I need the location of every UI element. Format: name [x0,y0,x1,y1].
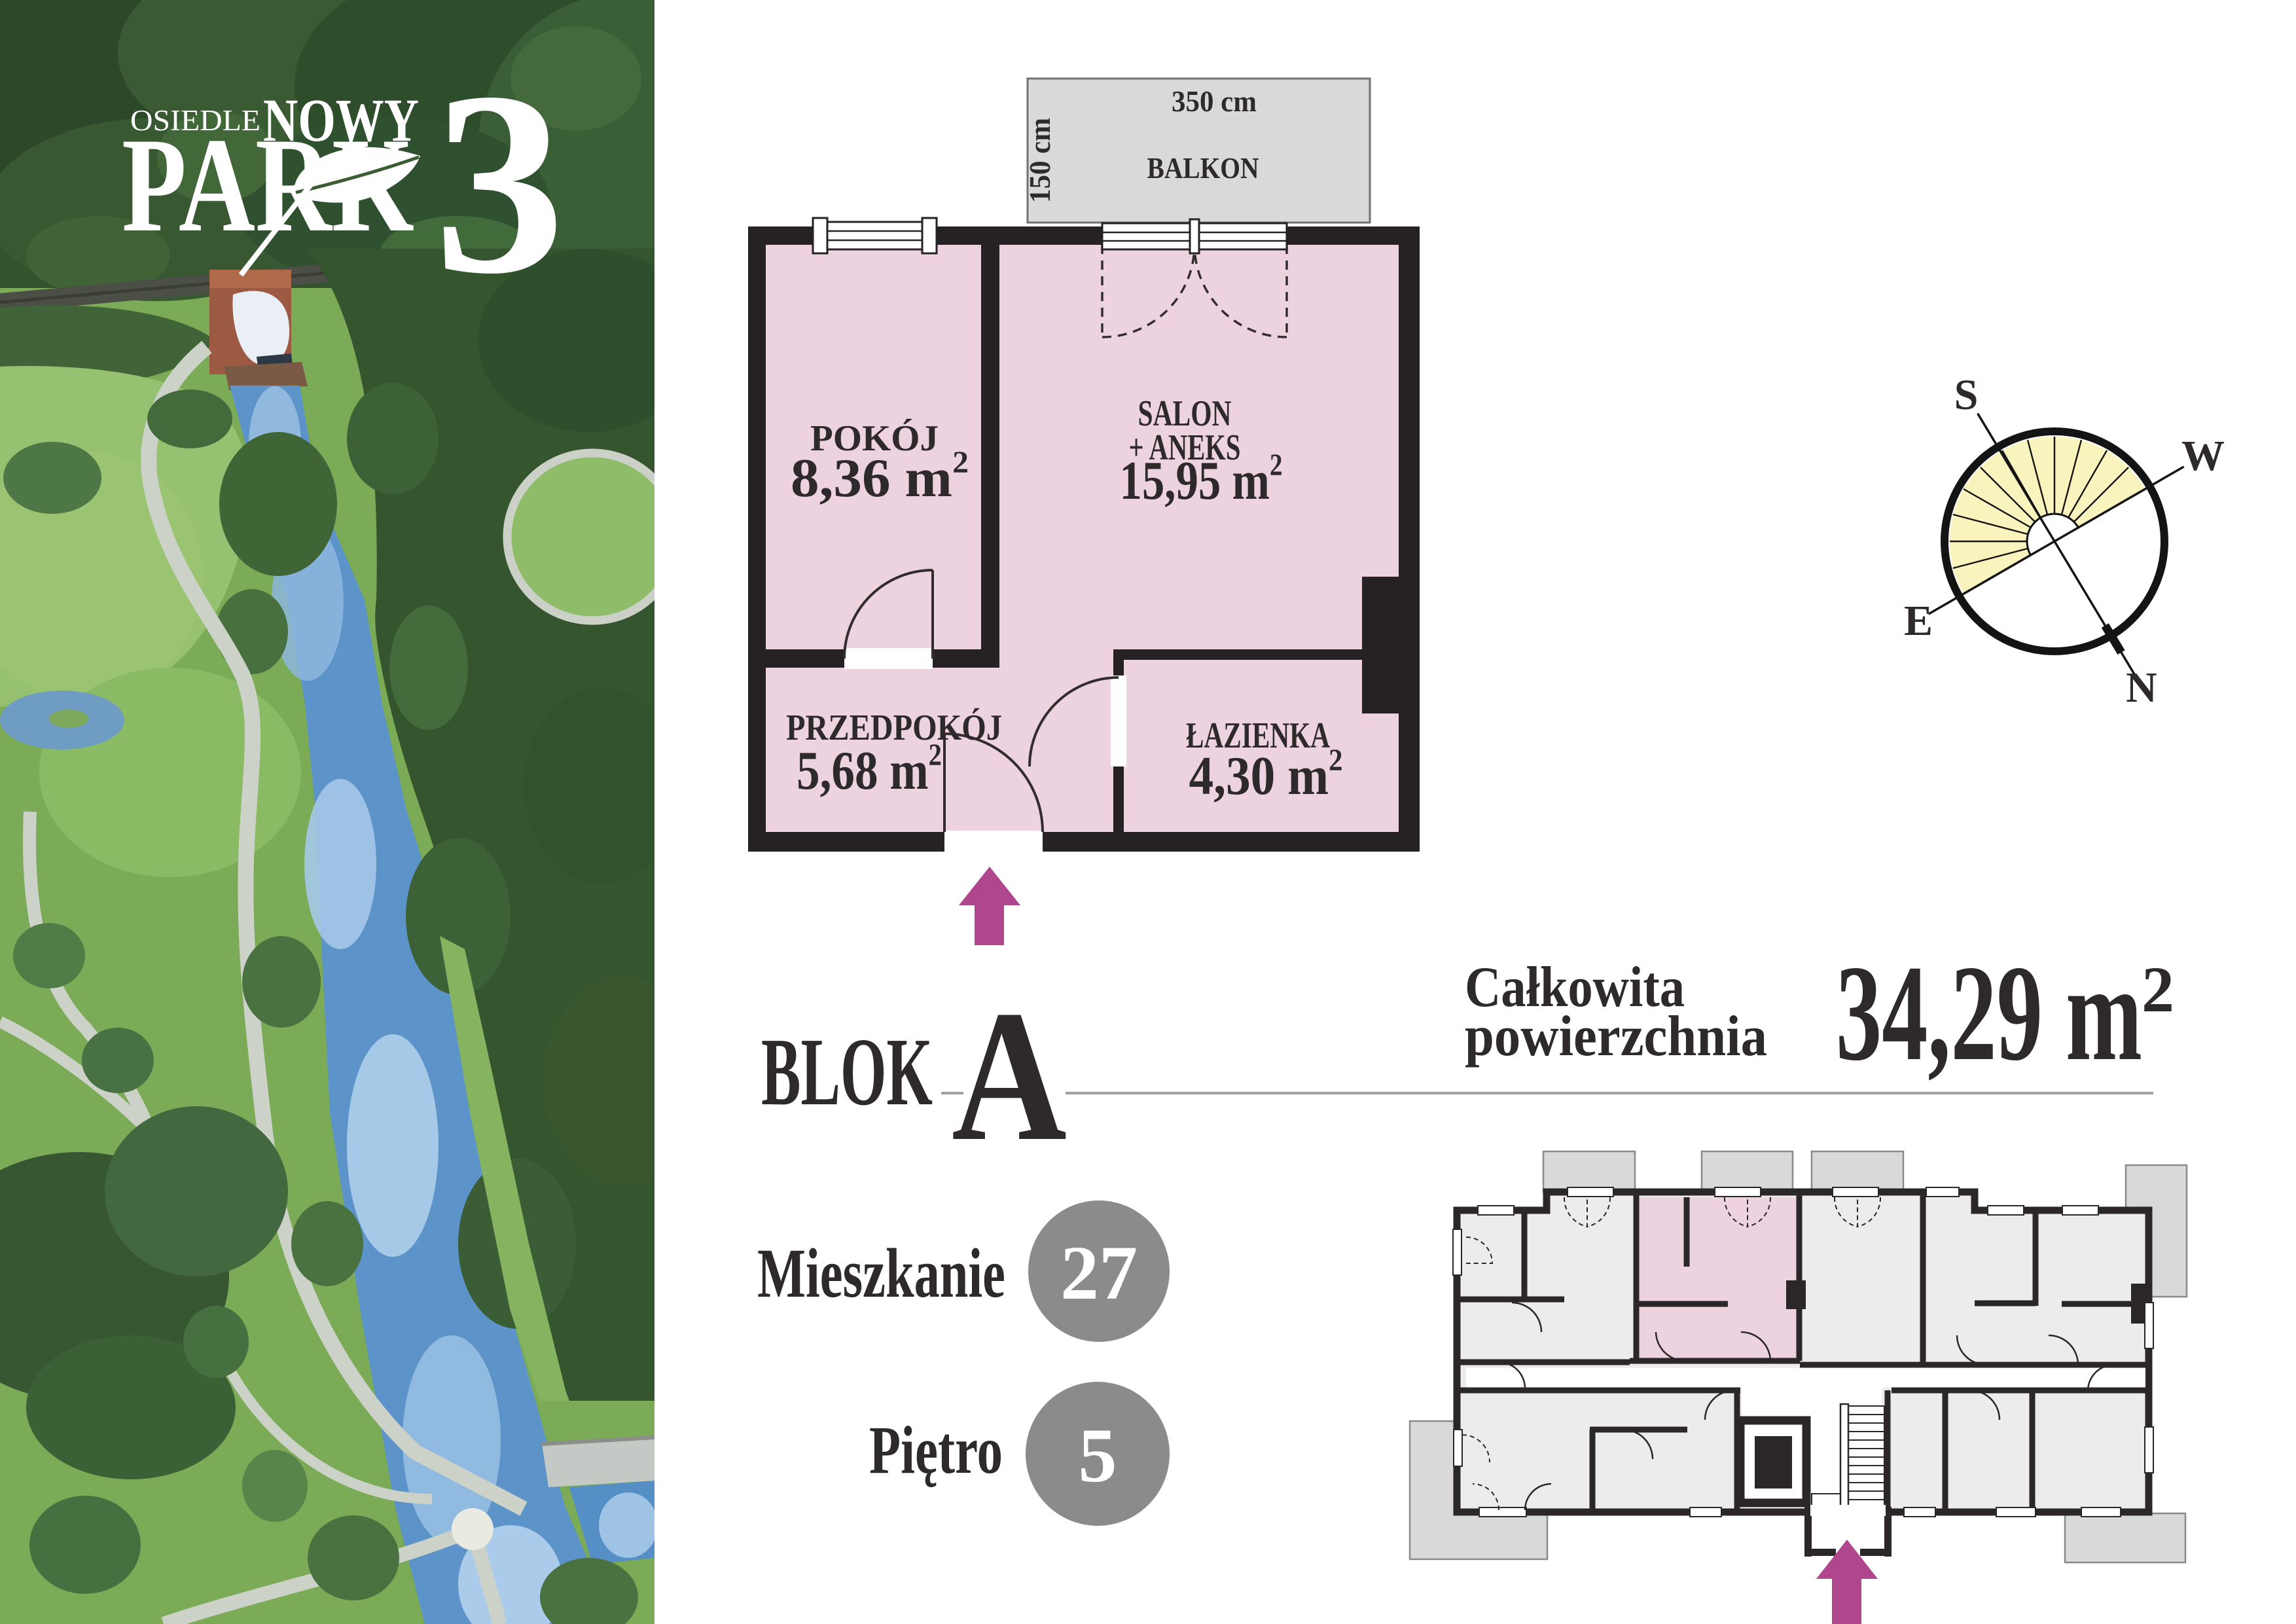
svg-text:27: 27 [1060,1230,1138,1316]
svg-text:A: A [952,972,1067,1180]
svg-text:BALKON: BALKON [1147,151,1259,185]
svg-text:E: E [1904,597,1933,645]
svg-text:3: 3 [434,38,565,328]
svg-text:350 cm: 350 cm [1172,85,1257,118]
svg-text:W: W [2181,432,2225,480]
svg-text:BLOK: BLOK [761,1019,933,1126]
svg-text:15,95 m2: 15,95 m2 [1120,448,1283,511]
svg-text:150 cm: 150 cm [1024,118,1056,203]
svg-text:Mieszkanie: Mieszkanie [757,1235,1005,1312]
svg-text:S: S [1954,371,1979,419]
svg-text:Piętro: Piętro [869,1413,1003,1488]
svg-text:4,30 m2: 4,30 m2 [1189,743,1343,806]
svg-text:8,36 m2: 8,36 m2 [791,445,969,509]
svg-text:5,68 m2: 5,68 m2 [797,738,942,801]
svg-text:powierzchnia: powierzchnia [1465,1005,1767,1068]
svg-text:2: 2 [2142,953,2174,1026]
svg-text:N: N [2126,664,2157,712]
svg-text:5: 5 [1079,1413,1117,1498]
svg-text:34,29 m: 34,29 m [1836,937,2142,1089]
